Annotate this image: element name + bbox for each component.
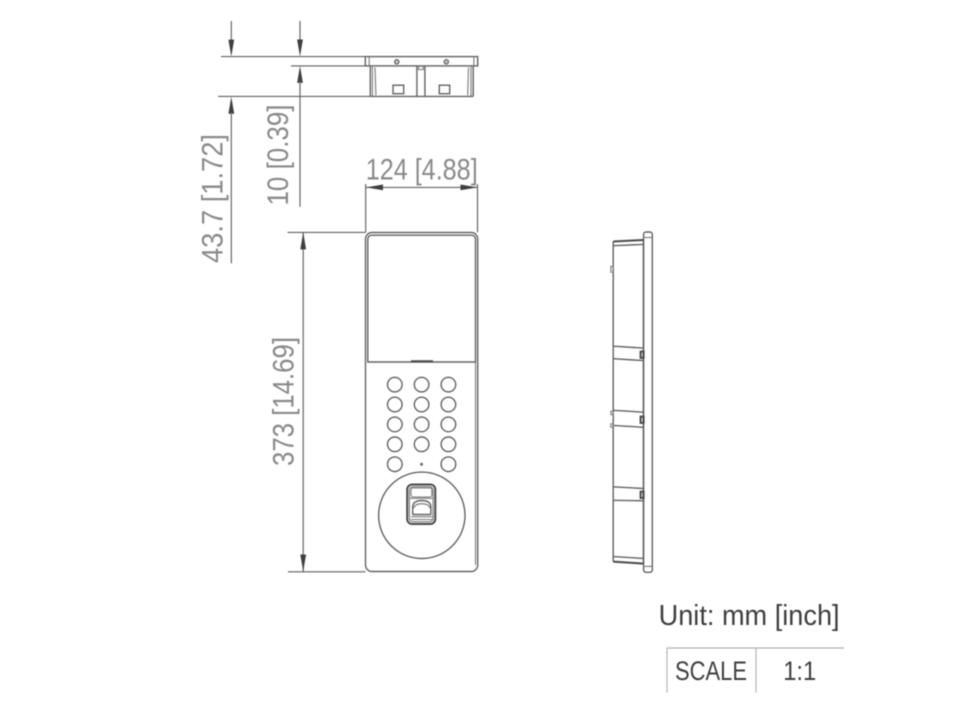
svg-text:43.7 [1.72]: 43.7 [1.72]	[197, 134, 230, 263]
svg-text:SCALE: SCALE	[675, 656, 747, 686]
svg-text:124 [4.88]: 124 [4.88]	[366, 154, 478, 187]
svg-text:10 [0.39]: 10 [0.39]	[262, 105, 295, 206]
svg-text:373 [14.69]: 373 [14.69]	[268, 337, 301, 466]
svg-text:1:1: 1:1	[783, 656, 816, 686]
svg-text:Unit: mm [inch]: Unit: mm [inch]	[659, 600, 840, 632]
